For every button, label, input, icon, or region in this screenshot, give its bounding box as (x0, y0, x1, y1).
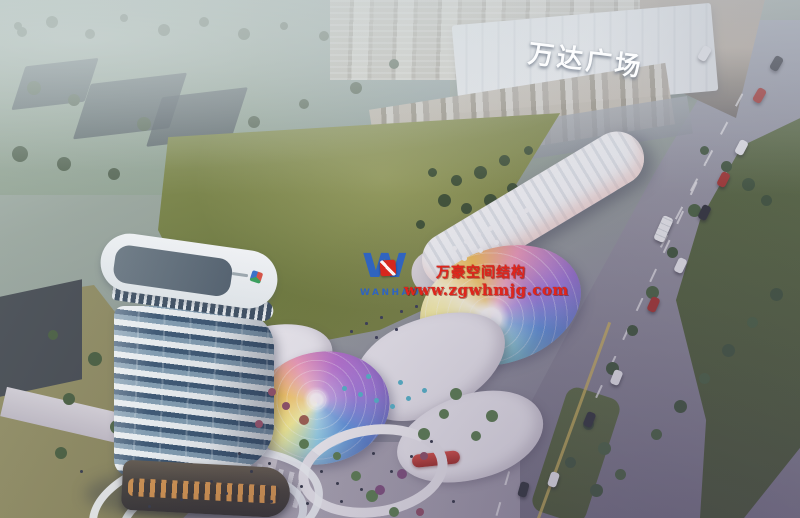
ground-trees (48, 330, 58, 340)
tower-shading (114, 306, 274, 476)
tower-brand-text (232, 272, 248, 277)
pedestrians (210, 480, 213, 483)
plaza-trees (333, 452, 341, 460)
street-trees (700, 146, 709, 155)
storefront-lights (128, 478, 281, 504)
autumn-trees (268, 388, 276, 396)
cafe-umbrellas (342, 386, 347, 391)
tower-roof-deck (112, 244, 234, 298)
aerial-rendering-scene: 万达广场 (0, 0, 800, 518)
park-trees (14, 22, 22, 30)
tower-brand-logo-icon (249, 270, 263, 284)
terrace-pedestrians (350, 330, 353, 333)
tower-base-storefront (121, 460, 291, 518)
watermark-company-name: 万豪空间结构 (436, 262, 526, 282)
watermark: W WANHAO 万豪空间结构 www.zgwhmjg.com (358, 248, 578, 312)
watermark-website-url: www.zgwhmjg.com (404, 281, 569, 299)
dark-building (0, 279, 82, 396)
tower-facade (114, 306, 274, 476)
lawn-edge-trees (428, 168, 437, 177)
watermark-logo-badge-icon (379, 259, 396, 276)
